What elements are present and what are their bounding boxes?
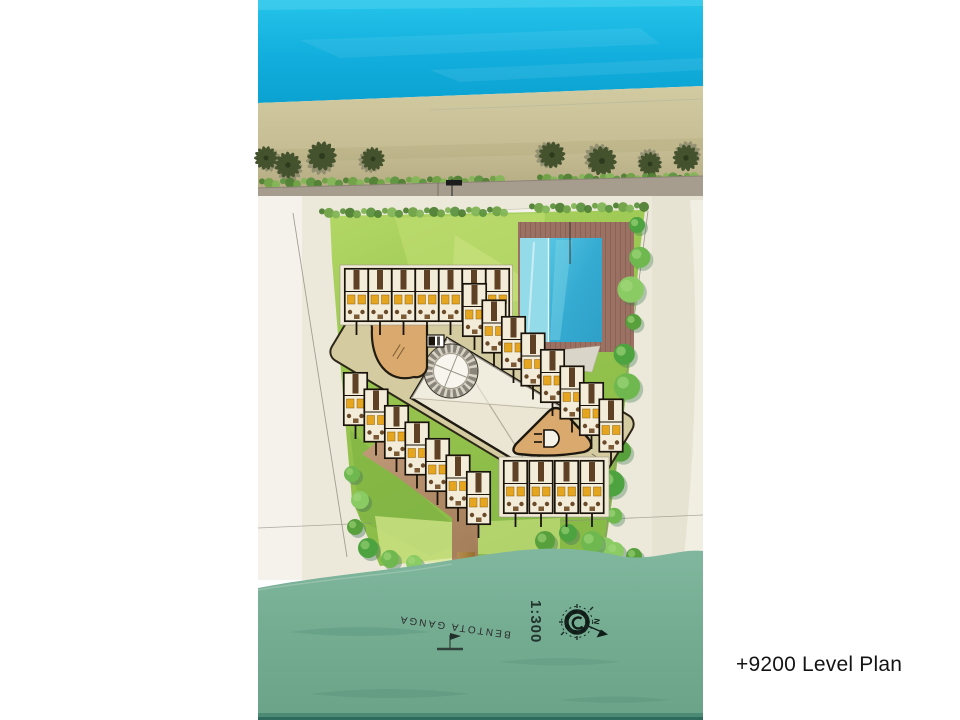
scale-label: 1:300	[527, 600, 544, 643]
sea-water	[258, 0, 703, 103]
service-block	[427, 335, 444, 347]
level-plan-caption: +9200 Level Plan	[736, 653, 902, 677]
stair-icon	[544, 430, 559, 447]
site-plan-canvas: A	[0, 0, 960, 720]
slide-background: A	[0, 0, 960, 720]
circular-stair	[424, 344, 478, 398]
